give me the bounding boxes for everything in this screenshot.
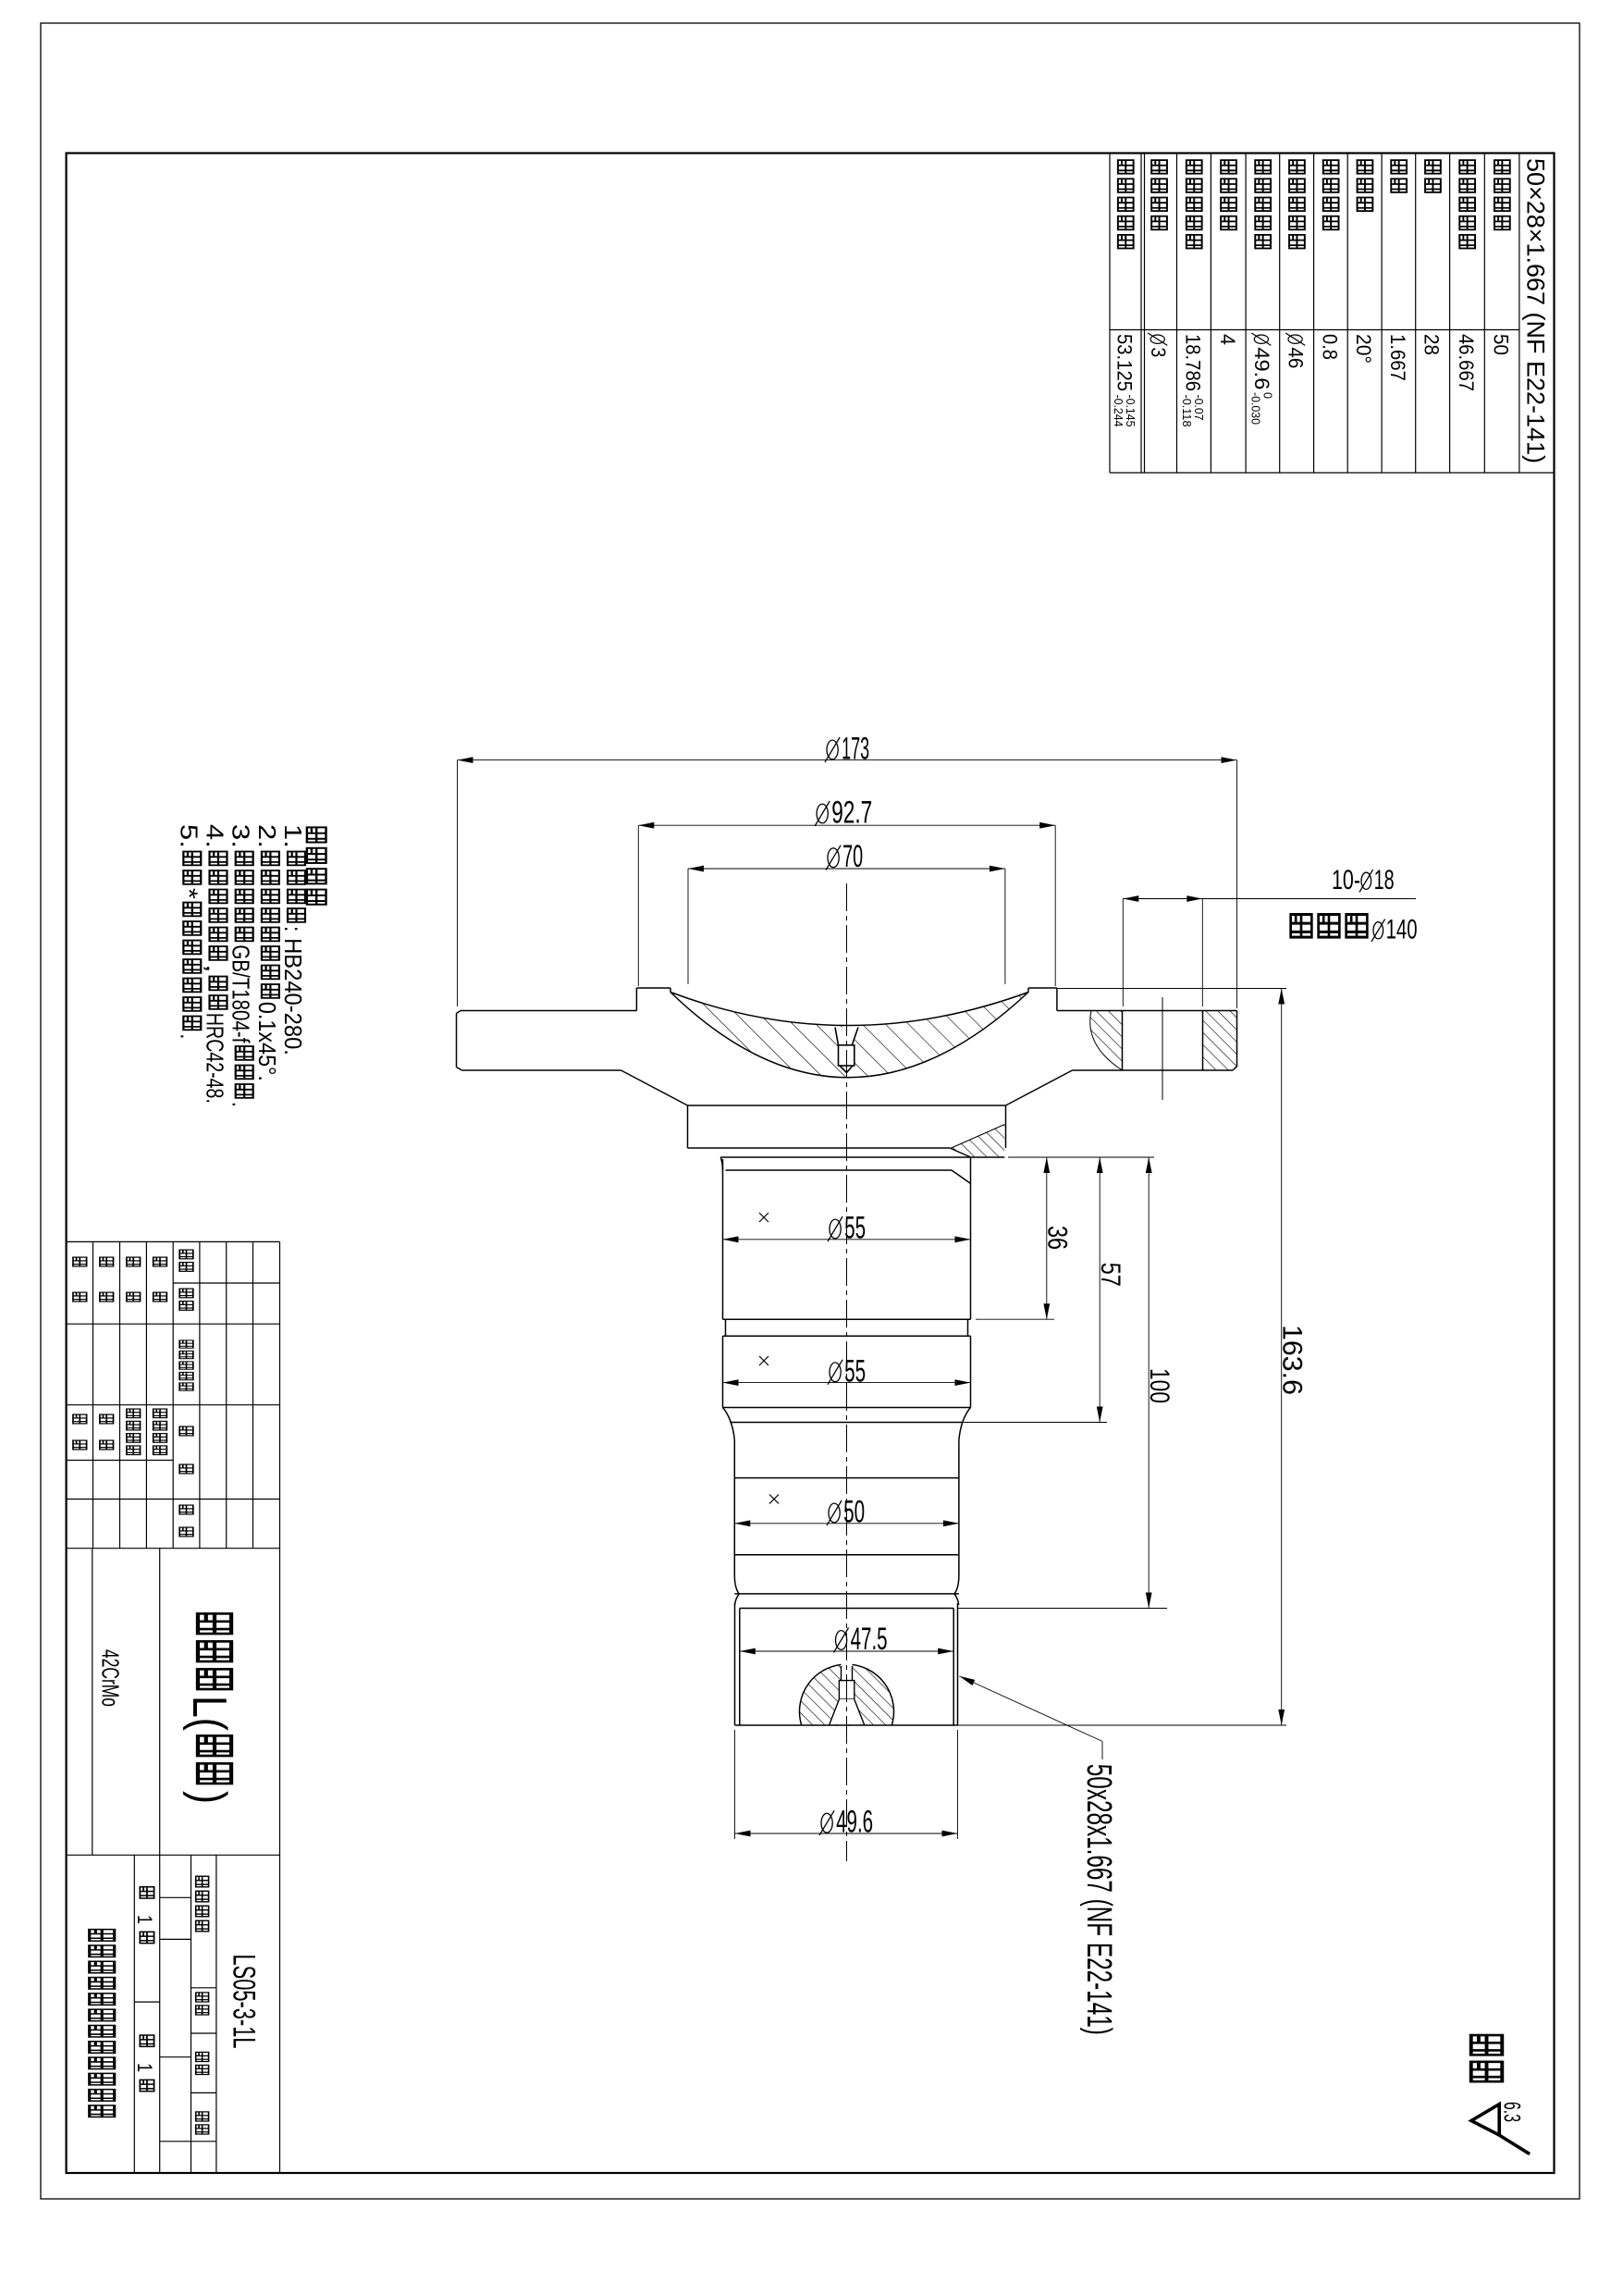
svg-text:18: 18: [1374, 865, 1395, 895]
svg-text:5.: 5.: [175, 824, 203, 848]
svg-text:4: 4: [1216, 334, 1239, 345]
svg-text:53.125: 53.125: [1113, 334, 1137, 391]
svg-text:3: 3: [1147, 347, 1170, 357]
svg-text:GB/T1804-f: GB/T1804-f: [227, 944, 255, 1043]
svg-text:50: 50: [1490, 334, 1513, 355]
svg-text:173: 173: [842, 732, 869, 767]
svg-text:-0.244: -0.244: [1112, 395, 1125, 427]
svg-text:1: 1: [133, 1915, 156, 1924]
svg-text:42CrMo: 42CrMo: [97, 1649, 125, 1707]
svg-text:3.: 3.: [227, 824, 255, 848]
svg-text:100: 100: [1144, 1368, 1174, 1403]
svg-text:10-: 10-: [1332, 865, 1360, 895]
svg-text:55: 55: [844, 1353, 866, 1389]
svg-text:49.6: 49.6: [1250, 347, 1273, 389]
svg-text:1: 1: [133, 2063, 156, 2072]
svg-text:70: 70: [842, 839, 863, 874]
svg-text:50: 50: [843, 1495, 865, 1530]
svg-text:140: 140: [1386, 915, 1418, 945]
svg-text:): ): [182, 1791, 236, 1804]
svg-text:4.: 4.: [202, 824, 229, 848]
svg-text:20°: 20°: [1352, 334, 1375, 364]
svg-text:,: ,: [202, 964, 229, 973]
svg-text:28: 28: [1420, 334, 1444, 355]
svg-text:49.6: 49.6: [836, 1805, 873, 1840]
svg-text:LS05-3-1L: LS05-3-1L: [227, 1955, 262, 2049]
svg-text:6.3: 6.3: [1499, 2102, 1525, 2122]
svg-text:18.786: 18.786: [1182, 334, 1205, 391]
svg-text:HRC42-48.: HRC42-48.: [202, 1013, 229, 1104]
svg-text:0.1x45°.: 0.1x45°.: [253, 1002, 281, 1081]
svg-text:163.6: 163.6: [1276, 1325, 1307, 1395]
svg-text:*: *: [175, 888, 203, 899]
svg-text:92.7: 92.7: [831, 796, 872, 831]
svg-text:50×28×1.667 (NF E22-141): 50×28×1.667 (NF E22-141): [1522, 158, 1550, 463]
svg-text:0.8: 0.8: [1318, 334, 1341, 360]
svg-text:46.667: 46.667: [1455, 334, 1478, 391]
svg-text:50x28x1.667 (NF E22-141): 50x28x1.667 (NF E22-141): [1079, 1764, 1118, 2035]
svg-text:: HB240-280.: : HB240-280.: [279, 926, 307, 1055]
svg-text:-0.118: -0.118: [1180, 395, 1194, 427]
svg-text:55: 55: [844, 1211, 866, 1246]
svg-text:46: 46: [1285, 347, 1308, 368]
svg-text:1.: 1.: [279, 824, 307, 848]
svg-text:2.: 2.: [253, 824, 281, 848]
svg-text:-0.030: -0.030: [1248, 392, 1262, 425]
svg-text:L(: L(: [182, 1696, 236, 1732]
svg-text:47.5: 47.5: [851, 1622, 888, 1657]
svg-text:1.667: 1.667: [1386, 334, 1409, 381]
svg-text:.: .: [227, 1102, 255, 1107]
svg-text:57: 57: [1095, 1263, 1125, 1287]
svg-text:36: 36: [1042, 1226, 1073, 1250]
svg-text:.: .: [175, 1033, 203, 1039]
